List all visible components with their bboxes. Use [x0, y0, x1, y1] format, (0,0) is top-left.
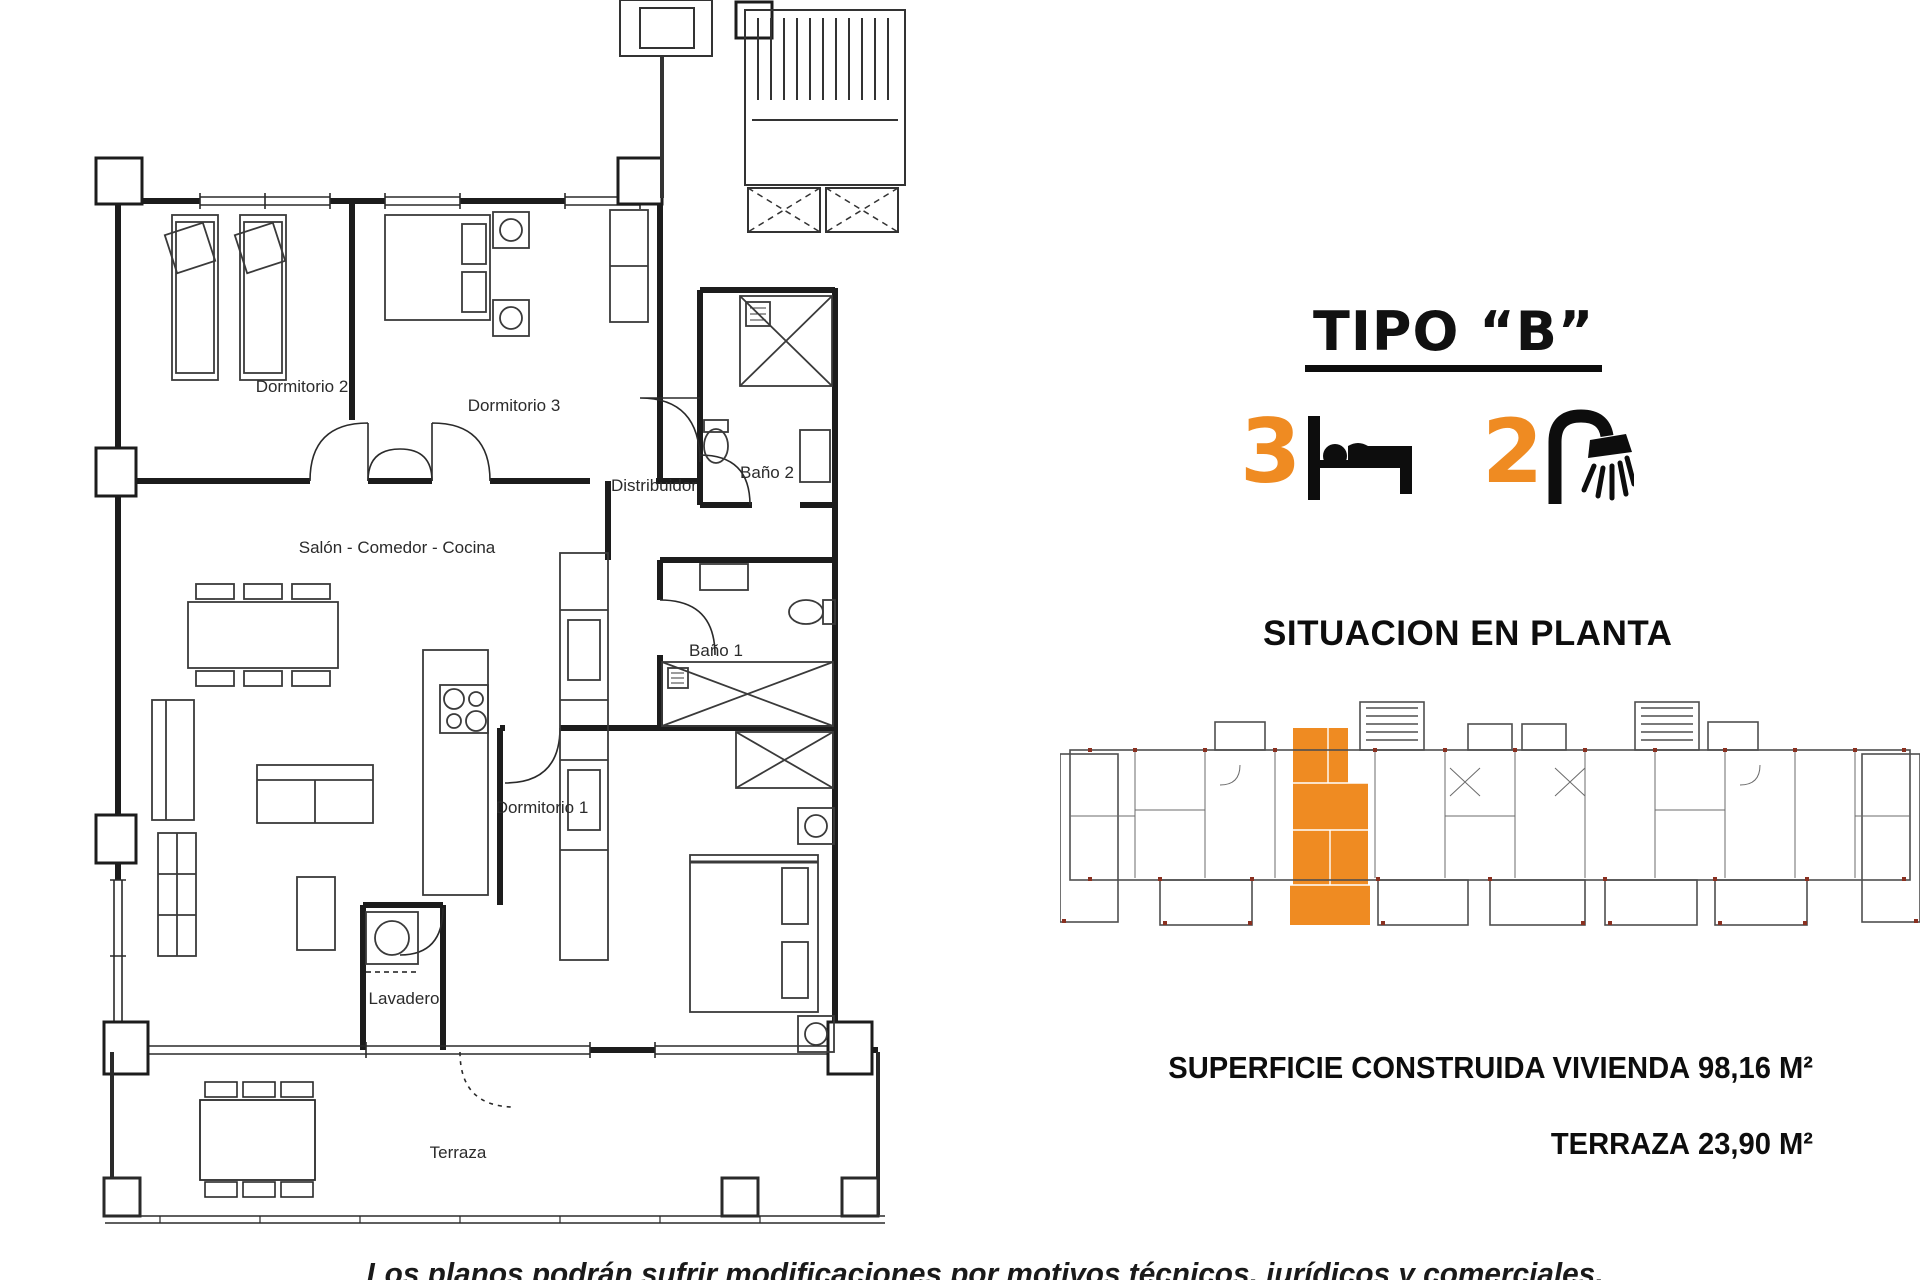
label-lavadero: Lavadero: [369, 989, 440, 1008]
building-outline: [1060, 702, 1920, 925]
dormitorio3-bed: [385, 210, 648, 336]
area-row-terraza: TERRAZA 23,90 M²: [1060, 1126, 1920, 1166]
bano2-fixtures: [704, 296, 832, 482]
dormitorio1-bed: [690, 732, 834, 1052]
bed-icon: [1308, 416, 1416, 500]
salon-furniture: [152, 584, 373, 956]
area-label-vivienda: SUPERFICIE CONSTRUIDA VIVIENDA: [1168, 1050, 1690, 1086]
bedrooms-feature: 3: [1240, 408, 1420, 508]
label-dormitorio2: Dormitorio 2: [256, 377, 349, 396]
label-salon: Salón - Comedor - Cocina: [299, 538, 496, 557]
area-value-terraza: 23,90 M²: [1698, 1126, 1813, 1162]
bano1-fixtures: [662, 564, 835, 726]
unit-dividers: [1070, 752, 1910, 878]
situation-plan: [1060, 690, 1920, 955]
area-value-vivienda: 98,16 M²: [1698, 1050, 1813, 1086]
label-dormitorio3: Dormitorio 3: [468, 396, 561, 415]
label-bano2: Baño 2: [740, 463, 794, 482]
highlighted-unit: [1290, 728, 1370, 925]
label-bano1: Baño 1: [689, 641, 743, 660]
label-distribuidor: Distribuidor: [611, 476, 697, 495]
bathrooms-count: 2: [1482, 400, 1543, 503]
room-labels: Dormitorio 2 Dormitorio 3 Baño 2 Distrib…: [256, 377, 794, 1162]
area-row-vivienda: SUPERFICIE CONSTRUIDA VIVIENDA 98,16 M²: [1060, 1050, 1920, 1090]
kitchen-units: [423, 553, 608, 960]
bedrooms-count: 3: [1240, 400, 1301, 503]
floorplan-sheet: Dormitorio 2 Dormitorio 3 Baño 2 Distrib…: [0, 0, 1920, 1280]
situation-heading: SITUACION EN PLANTA: [1263, 614, 1672, 654]
lavadero-washer: [366, 912, 418, 972]
area-label-terraza: TERRAZA: [1551, 1126, 1690, 1162]
label-terraza: Terraza: [430, 1143, 487, 1162]
label-dormitorio1: Dormitorio 1: [496, 798, 589, 817]
shower-icon: [1548, 408, 1634, 506]
bathrooms-feature: 2: [1482, 408, 1642, 508]
unit-type-title: TIPO “B”: [1305, 300, 1602, 372]
dormitorio2-beds: [165, 215, 286, 380]
apartment-floor-plan: Dormitorio 2 Dormitorio 3 Baño 2 Distrib…: [0, 0, 960, 1280]
disclaimer-text: Los planos podrán sufrir modificaciones …: [366, 1256, 1603, 1280]
terraza-elements: [104, 1052, 885, 1223]
